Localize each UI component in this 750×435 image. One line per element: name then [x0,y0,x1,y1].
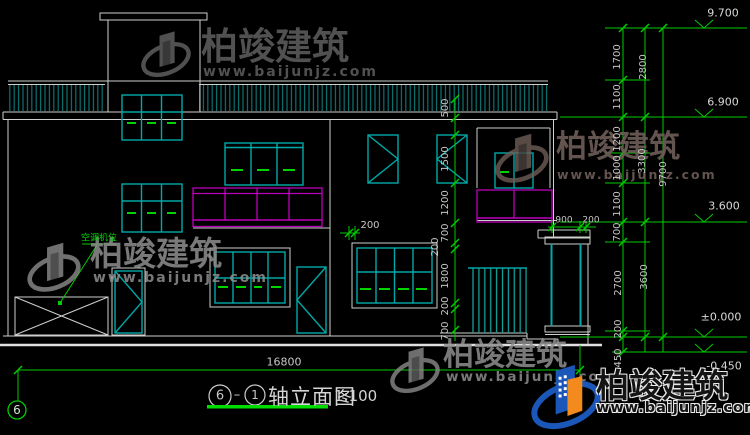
ac-unit-label: 空调机位 [81,235,117,244]
porch-column [552,244,581,326]
elevation-3600: 3.600 [708,201,740,212]
dim-mid-700b: 700 [441,321,451,340]
watermark-logo-top [138,26,194,80]
watermark-logo-left [20,237,88,295]
company-logo-blue [529,357,603,435]
dim-total-width: 16800 [267,357,302,368]
dim-r-3300: 3300 [638,148,648,173]
tower-window-lower [122,184,182,232]
company-brand-text: 柏竣建筑 [596,369,728,402]
watermark-url-top: www.baijunjz.com [203,65,378,79]
dim-mid-200b: 200 [441,296,451,315]
casement-window-a [368,135,398,183]
dim-mid-1800: 1800 [441,263,451,288]
title-bubble-6: 6 [216,390,224,403]
tower-window-upper [122,95,182,140]
dim-r-2700: 2700 [614,270,624,295]
watermark-logo-bottom [388,338,442,400]
axis-bubble-number: 6 [13,404,21,416]
title-separator: – [234,389,241,402]
dim-porch-900: 900 [555,217,572,226]
elevation-6900: 6.900 [707,97,739,108]
drawing-scale: 1:100 [334,387,377,405]
dim-r-9700: 9700 [659,161,669,186]
dim-r-1200: 1200 [613,126,623,151]
watermark-logo-right [492,128,552,186]
porch-gate-slats [468,268,527,333]
dim-r-700: 700 [613,222,623,241]
roof-parapet-railing [8,81,548,111]
balcony-window-left [225,143,303,185]
dim-mid-1500: 1500 [441,146,451,171]
dim-r-1100a: 1100 [613,84,623,109]
watermark-url-left: www.baijunjz.com [93,271,268,285]
elevation-0000: ±0.000 [701,312,742,323]
dim-mid-700a: 700 [441,223,451,242]
first-floor-window-right [357,248,432,303]
entry-door-right [297,267,326,333]
dim-r-3600: 3600 [640,264,650,289]
elevation-neg450: -0.450 [706,361,741,372]
dim-porch-200: 200 [582,217,599,226]
dim-mid-200a: 200 [431,237,441,256]
elevation-triangles [695,20,713,352]
dim-r-200: 200 [614,319,624,338]
watermark-brand-top: 柏竣建筑 [201,28,349,65]
eave-slab [3,112,557,120]
elevation-9700: 9.700 [707,8,739,19]
dim-r-1000: 1000 [613,155,623,180]
dim-r-1700: 1700 [613,44,623,69]
dim-r-450: 450 [614,348,624,367]
dim-mid-500: 500 [441,98,451,117]
dim-mid-1200: 1200 [441,190,451,215]
dim-r-1100b: 1100 [613,191,623,216]
cad-elevation-screenshot: 柏竣建筑 www.baijunjz.com 柏竣建筑 www.baijunjz.… [0,0,750,435]
dim-balcony-200: 200 [360,221,379,231]
dim-r-2800: 2800 [639,54,649,79]
company-url-text: www.baijunjz.com [596,401,750,416]
title-bubble-1: 1 [251,389,259,401]
